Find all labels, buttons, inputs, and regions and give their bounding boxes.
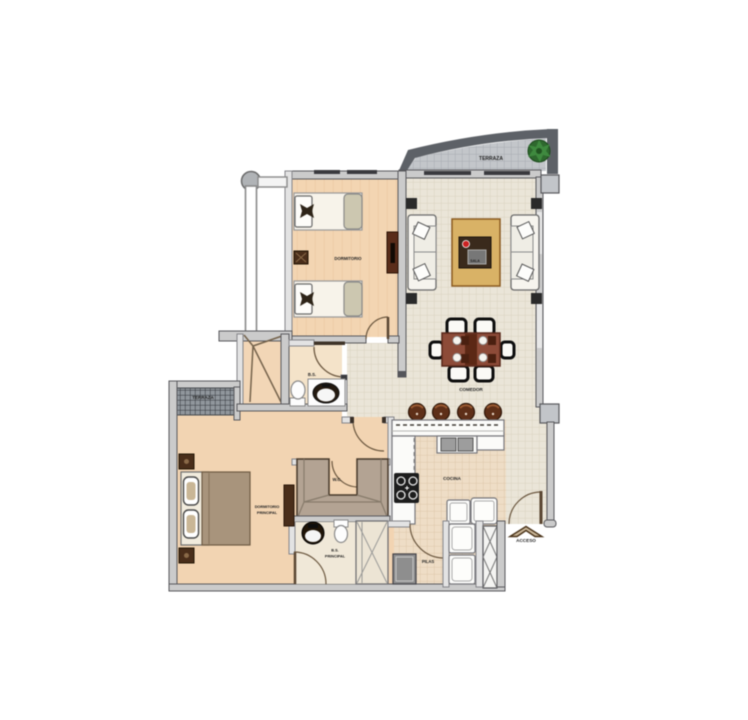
- svg-text:B.S.: B.S.: [331, 549, 338, 553]
- svg-text:ACCESO: ACCESO: [516, 538, 536, 543]
- svg-text:PRINCIPAL: PRINCIPAL: [325, 555, 346, 559]
- svg-text:DORMITORIO: DORMITORIO: [255, 505, 280, 509]
- svg-text:TERRAZA: TERRAZA: [192, 395, 214, 400]
- svg-text:PRINCIPAL: PRINCIPAL: [257, 511, 278, 515]
- svg-text:DORMITORIO: DORMITORIO: [334, 256, 362, 261]
- svg-text:W.C.: W.C.: [332, 477, 341, 482]
- svg-text:COCINA: COCINA: [443, 476, 461, 481]
- svg-text:PILAS: PILAS: [422, 559, 435, 564]
- svg-text:TERRAZA: TERRAZA: [479, 156, 503, 162]
- svg-text:SALA: SALA: [470, 259, 480, 263]
- svg-text:B.S.: B.S.: [308, 372, 316, 377]
- svg-text:COMEDOR: COMEDOR: [459, 387, 483, 392]
